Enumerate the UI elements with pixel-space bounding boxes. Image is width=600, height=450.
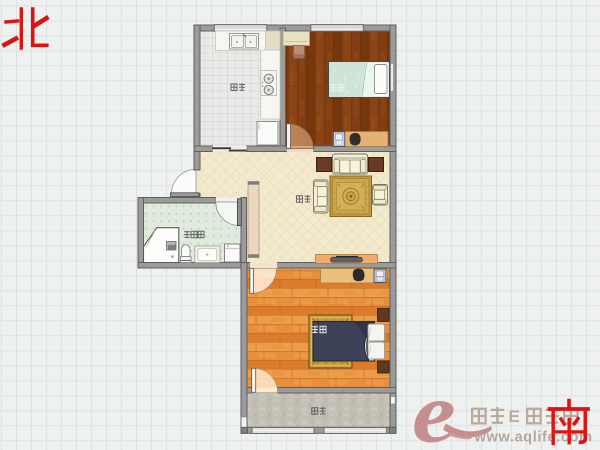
svg-text:E: E (509, 407, 520, 426)
svg-text:e: e (412, 366, 456, 450)
